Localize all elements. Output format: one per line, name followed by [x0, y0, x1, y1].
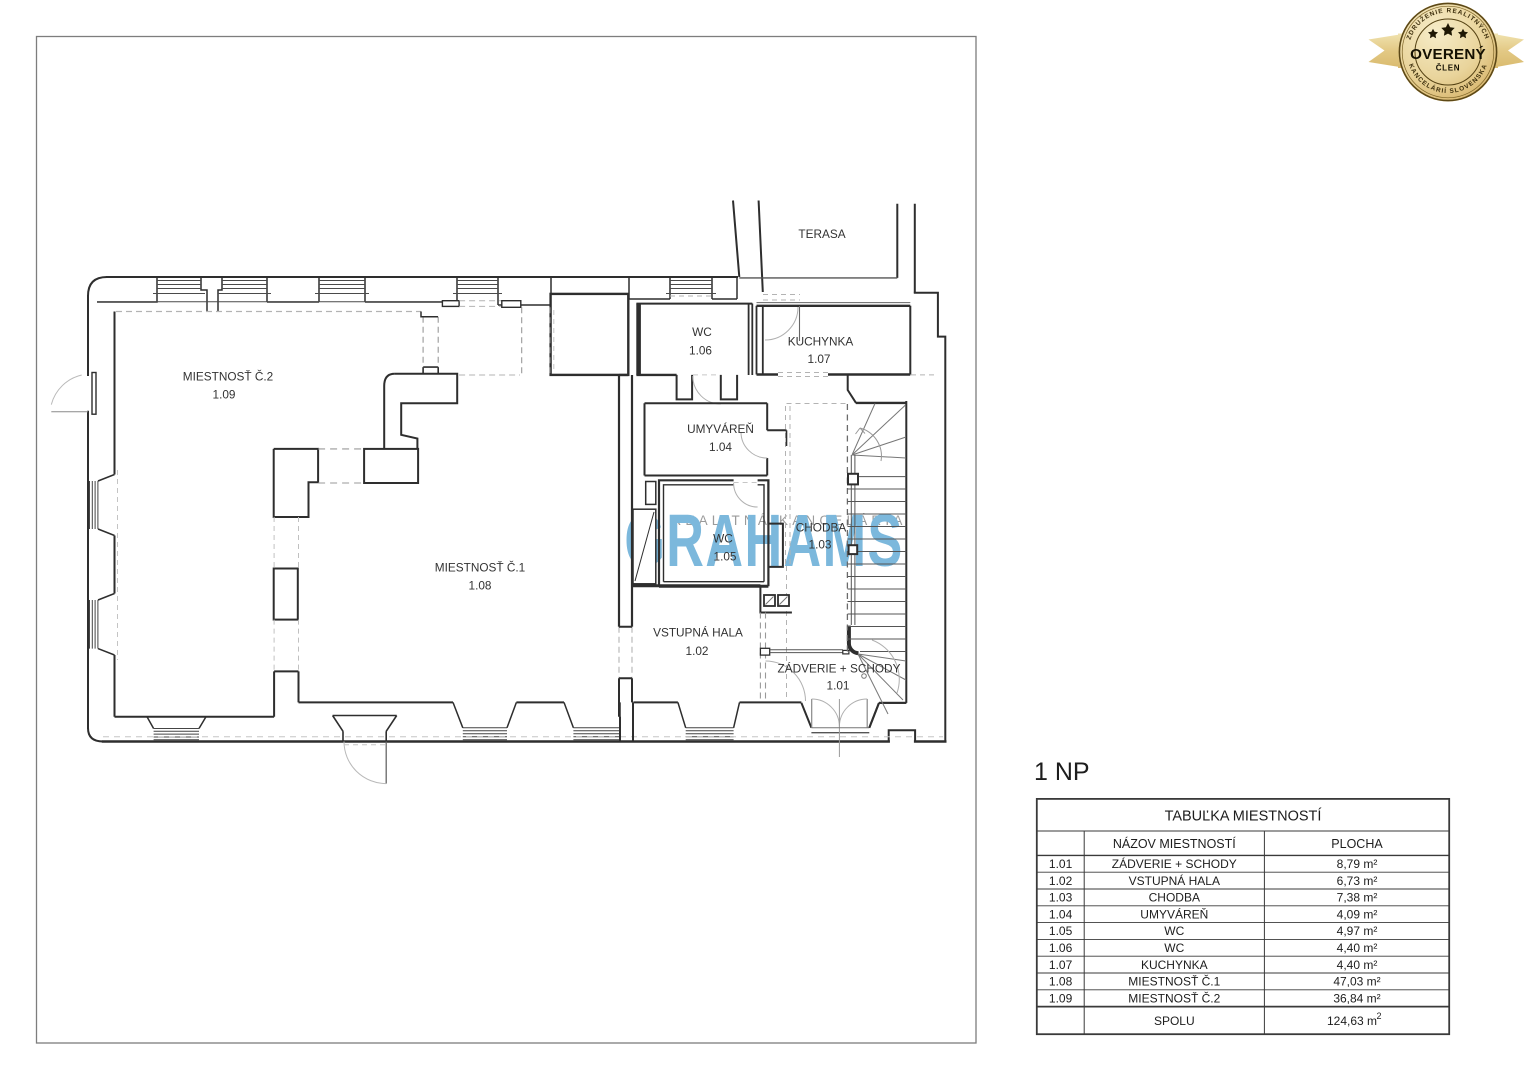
svg-text:4,40 m²: 4,40 m² [1337, 958, 1378, 972]
svg-text:36,84 m²: 36,84 m² [1333, 991, 1380, 1005]
svg-text:KUCHYNKA: KUCHYNKA [1141, 958, 1208, 972]
svg-text:124,63 m: 124,63 m [1327, 1014, 1377, 1028]
svg-text:1.03: 1.03 [1049, 891, 1073, 905]
svg-text:WC: WC [1164, 941, 1184, 955]
svg-text:1.08: 1.08 [1049, 975, 1073, 989]
svg-text:1.09: 1.09 [1049, 991, 1073, 1005]
svg-text:8,79 m²: 8,79 m² [1337, 857, 1378, 871]
svg-text:4,09 m²: 4,09 m² [1337, 907, 1378, 921]
svg-text:1.08: 1.08 [469, 579, 492, 593]
svg-text:1.04: 1.04 [709, 440, 732, 454]
svg-text:1.06: 1.06 [1049, 941, 1073, 955]
svg-text:1.07: 1.07 [1049, 958, 1073, 972]
svg-text:VSTUPNÁ HALA: VSTUPNÁ HALA [1129, 873, 1220, 888]
svg-text:1.01: 1.01 [827, 679, 850, 693]
svg-text:NÁZOV MIESTNOSTÍ: NÁZOV MIESTNOSTÍ [1113, 836, 1236, 851]
svg-text:1.06: 1.06 [689, 344, 712, 358]
svg-text:1.04: 1.04 [1049, 907, 1073, 921]
svg-text:MIESTNOSŤ Č.2: MIESTNOSŤ Č.2 [1128, 990, 1220, 1005]
svg-text:MIESTNOSŤ Č.1: MIESTNOSŤ Č.1 [435, 561, 525, 575]
svg-text:TERASA: TERASA [798, 227, 845, 241]
svg-text:ZÁDVERIE + SCHODY: ZÁDVERIE + SCHODY [1112, 856, 1237, 871]
svg-text:4,40 m²: 4,40 m² [1337, 941, 1378, 955]
svg-text:ČLEN: ČLEN [1436, 64, 1461, 73]
svg-text:1.05: 1.05 [714, 550, 737, 564]
svg-text:47,03 m²: 47,03 m² [1333, 975, 1380, 989]
svg-text:4,97 m²: 4,97 m² [1337, 924, 1378, 938]
svg-text:ZÁDVERIE + SCHODY: ZÁDVERIE + SCHODY [778, 662, 901, 676]
svg-text:WC: WC [1164, 924, 1184, 938]
svg-text:TABUĽKA MIESTNOSTÍ: TABUĽKA MIESTNOSTÍ [1165, 808, 1322, 825]
svg-text:1.02: 1.02 [1049, 874, 1073, 888]
svg-text:MIESTNOSŤ Č.2: MIESTNOSŤ Č.2 [183, 370, 273, 384]
svg-text:1.09: 1.09 [213, 388, 236, 402]
svg-text:WC: WC [692, 325, 712, 339]
svg-text:1.07: 1.07 [808, 352, 831, 366]
svg-text:UMYVÁREŇ: UMYVÁREŇ [1140, 906, 1208, 921]
svg-text:1.03: 1.03 [809, 538, 832, 552]
svg-text:KUCHYNKA: KUCHYNKA [788, 335, 854, 349]
svg-text:1.02: 1.02 [686, 644, 709, 658]
svg-text:PLOCHA: PLOCHA [1331, 837, 1383, 851]
svg-text:VSTUPNÁ HALA: VSTUPNÁ HALA [653, 626, 743, 640]
svg-text:1 NP: 1 NP [1034, 758, 1090, 786]
svg-text:CHODBA: CHODBA [796, 521, 847, 535]
svg-text:2: 2 [1376, 1011, 1381, 1021]
svg-text:SPOLU: SPOLU [1154, 1014, 1195, 1028]
svg-text:CHODBA: CHODBA [1149, 891, 1200, 905]
svg-text:UMYVÁREŇ: UMYVÁREŇ [687, 422, 754, 436]
svg-text:MIESTNOSŤ Č.1: MIESTNOSŤ Č.1 [1128, 974, 1220, 989]
svg-text:OVERENÝ: OVERENÝ [1410, 45, 1486, 63]
svg-text:7,38 m²: 7,38 m² [1337, 891, 1378, 905]
svg-text:1.01: 1.01 [1049, 857, 1073, 871]
svg-text:1.05: 1.05 [1049, 924, 1073, 938]
svg-text:WC: WC [713, 532, 733, 546]
svg-text:6,73 m²: 6,73 m² [1337, 874, 1378, 888]
